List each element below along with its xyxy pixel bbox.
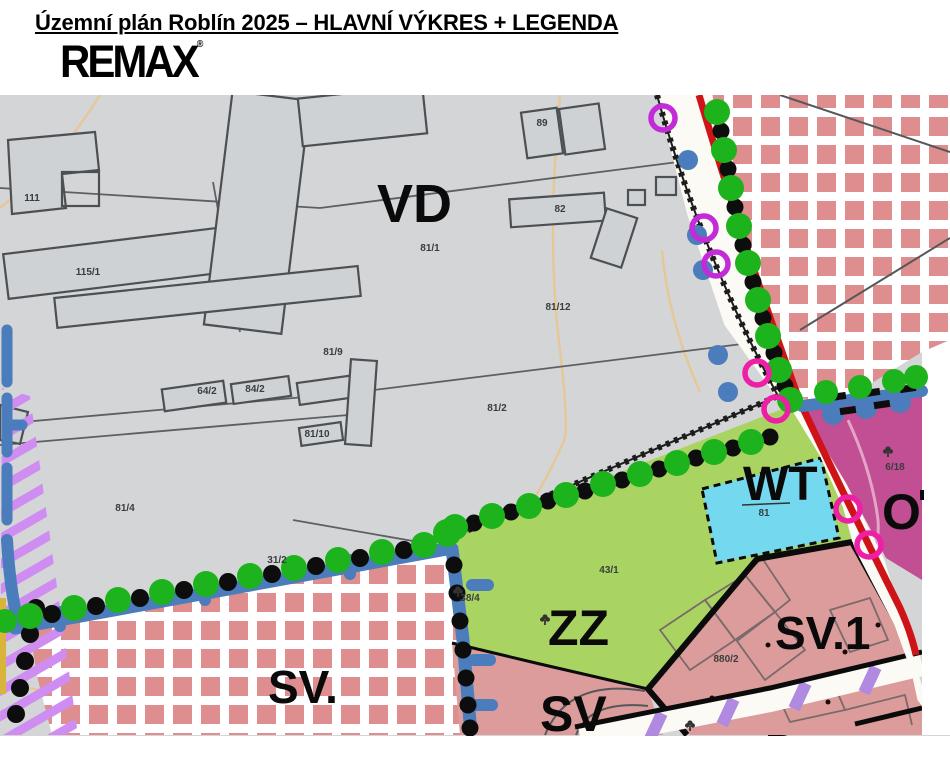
- zoning-map: VD WT ZZ SV. SV SV.1 O P 111 115/1 89 82…: [0, 95, 950, 736]
- zone-label-sv: SV: [540, 686, 607, 736]
- zone-label-sv1: SV.1: [775, 607, 871, 659]
- parcel-label: 6/18: [885, 462, 905, 473]
- parcel-label: 82: [554, 204, 566, 215]
- map-edge-white: [922, 340, 950, 735]
- registered-mark: ®: [197, 38, 204, 49]
- parcel-label: 38/4: [460, 593, 480, 604]
- parcel-label: 111: [24, 193, 40, 204]
- parcel-label: 81/4: [115, 503, 135, 514]
- zone-label-cut: P: [765, 726, 794, 736]
- parcel-label: 115/1: [76, 267, 101, 278]
- parcel-label: 880/2: [713, 654, 738, 665]
- listing-page: Územní plán Roblín 2025 – HLAVNÍ VÝKRES …: [0, 0, 950, 776]
- remax-logo-text: REMAX: [60, 36, 197, 87]
- parcel-label: 81/2: [487, 403, 507, 414]
- zoning-map-svg: VD WT ZZ SV. SV SV.1 O P 111 115/1 89 82…: [0, 95, 950, 736]
- parcel-label: 81/10: [304, 429, 329, 440]
- remax-logo: REMAX®: [60, 36, 203, 88]
- parcel-label: 81/12: [545, 302, 570, 313]
- parcel-label: 81/1: [420, 243, 440, 254]
- zone-label-o: O: [882, 484, 921, 540]
- zone-label-vd: VD: [377, 174, 452, 234]
- zone-label-sv-dot: SV.: [268, 661, 338, 713]
- parcel-label: 31/2: [267, 555, 287, 566]
- parcel-label-wt: 81: [758, 508, 770, 519]
- page-title: Územní plán Roblín 2025 – HLAVNÍ VÝKRES …: [35, 10, 935, 36]
- parcel-label: 84/2: [245, 384, 265, 395]
- zone-label-zz: ZZ: [548, 600, 609, 656]
- parcel-label: 81/9: [323, 347, 343, 358]
- parcel-label: 64/2: [197, 386, 217, 397]
- zone-label-o-tick: [920, 490, 924, 500]
- parcel-label: 89: [536, 118, 548, 129]
- parcel-label: 43/1: [599, 565, 619, 576]
- header: Územní plán Roblín 2025 – HLAVNÍ VÝKRES …: [35, 10, 935, 36]
